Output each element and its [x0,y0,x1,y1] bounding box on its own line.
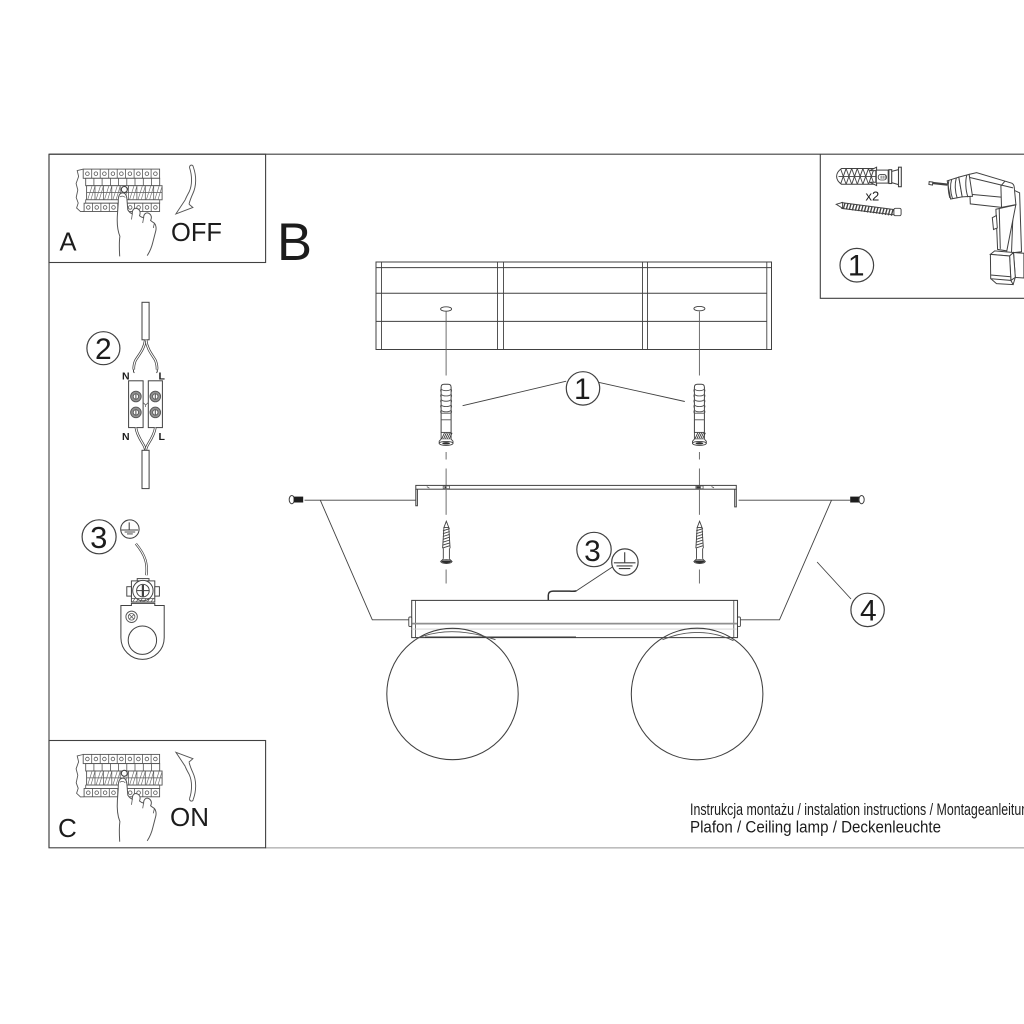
svg-text:x2: x2 [866,188,880,203]
svg-text:C: C [58,813,77,843]
svg-text:B: B [277,213,312,272]
svg-text:1: 1 [574,373,591,406]
svg-text:OFF: OFF [171,219,222,247]
svg-text:A: A [60,229,77,257]
svg-text:Plafon / Ceiling lamp / Decken: Plafon / Ceiling lamp / Deckenleuchte [690,818,941,837]
svg-text:ON: ON [170,802,209,832]
svg-text:2: 2 [95,333,112,366]
svg-text:3: 3 [90,520,107,555]
svg-text:4: 4 [860,595,877,628]
svg-text:N: N [122,431,130,443]
svg-text:L: L [159,431,166,443]
svg-text:1: 1 [848,250,865,283]
svg-text:Instrukcja montażu / instalati: Instrukcja montażu / instalation instruc… [690,800,1024,819]
svg-text:3: 3 [584,535,601,568]
